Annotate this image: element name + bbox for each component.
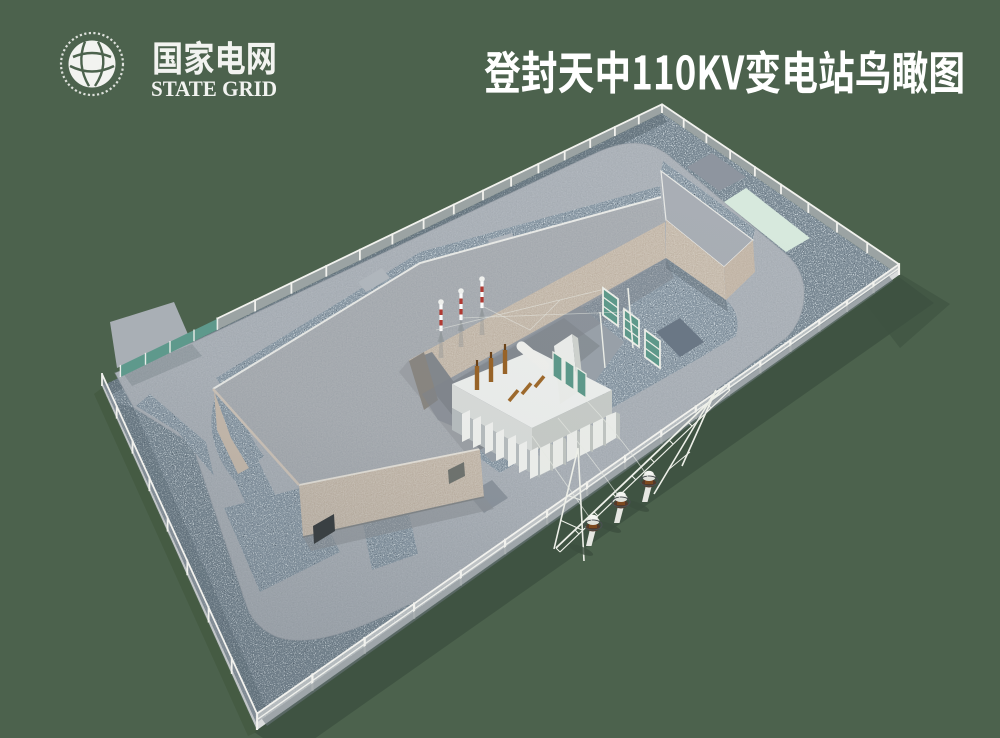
svg-text:STATE GRID: STATE GRID <box>151 76 277 101</box>
